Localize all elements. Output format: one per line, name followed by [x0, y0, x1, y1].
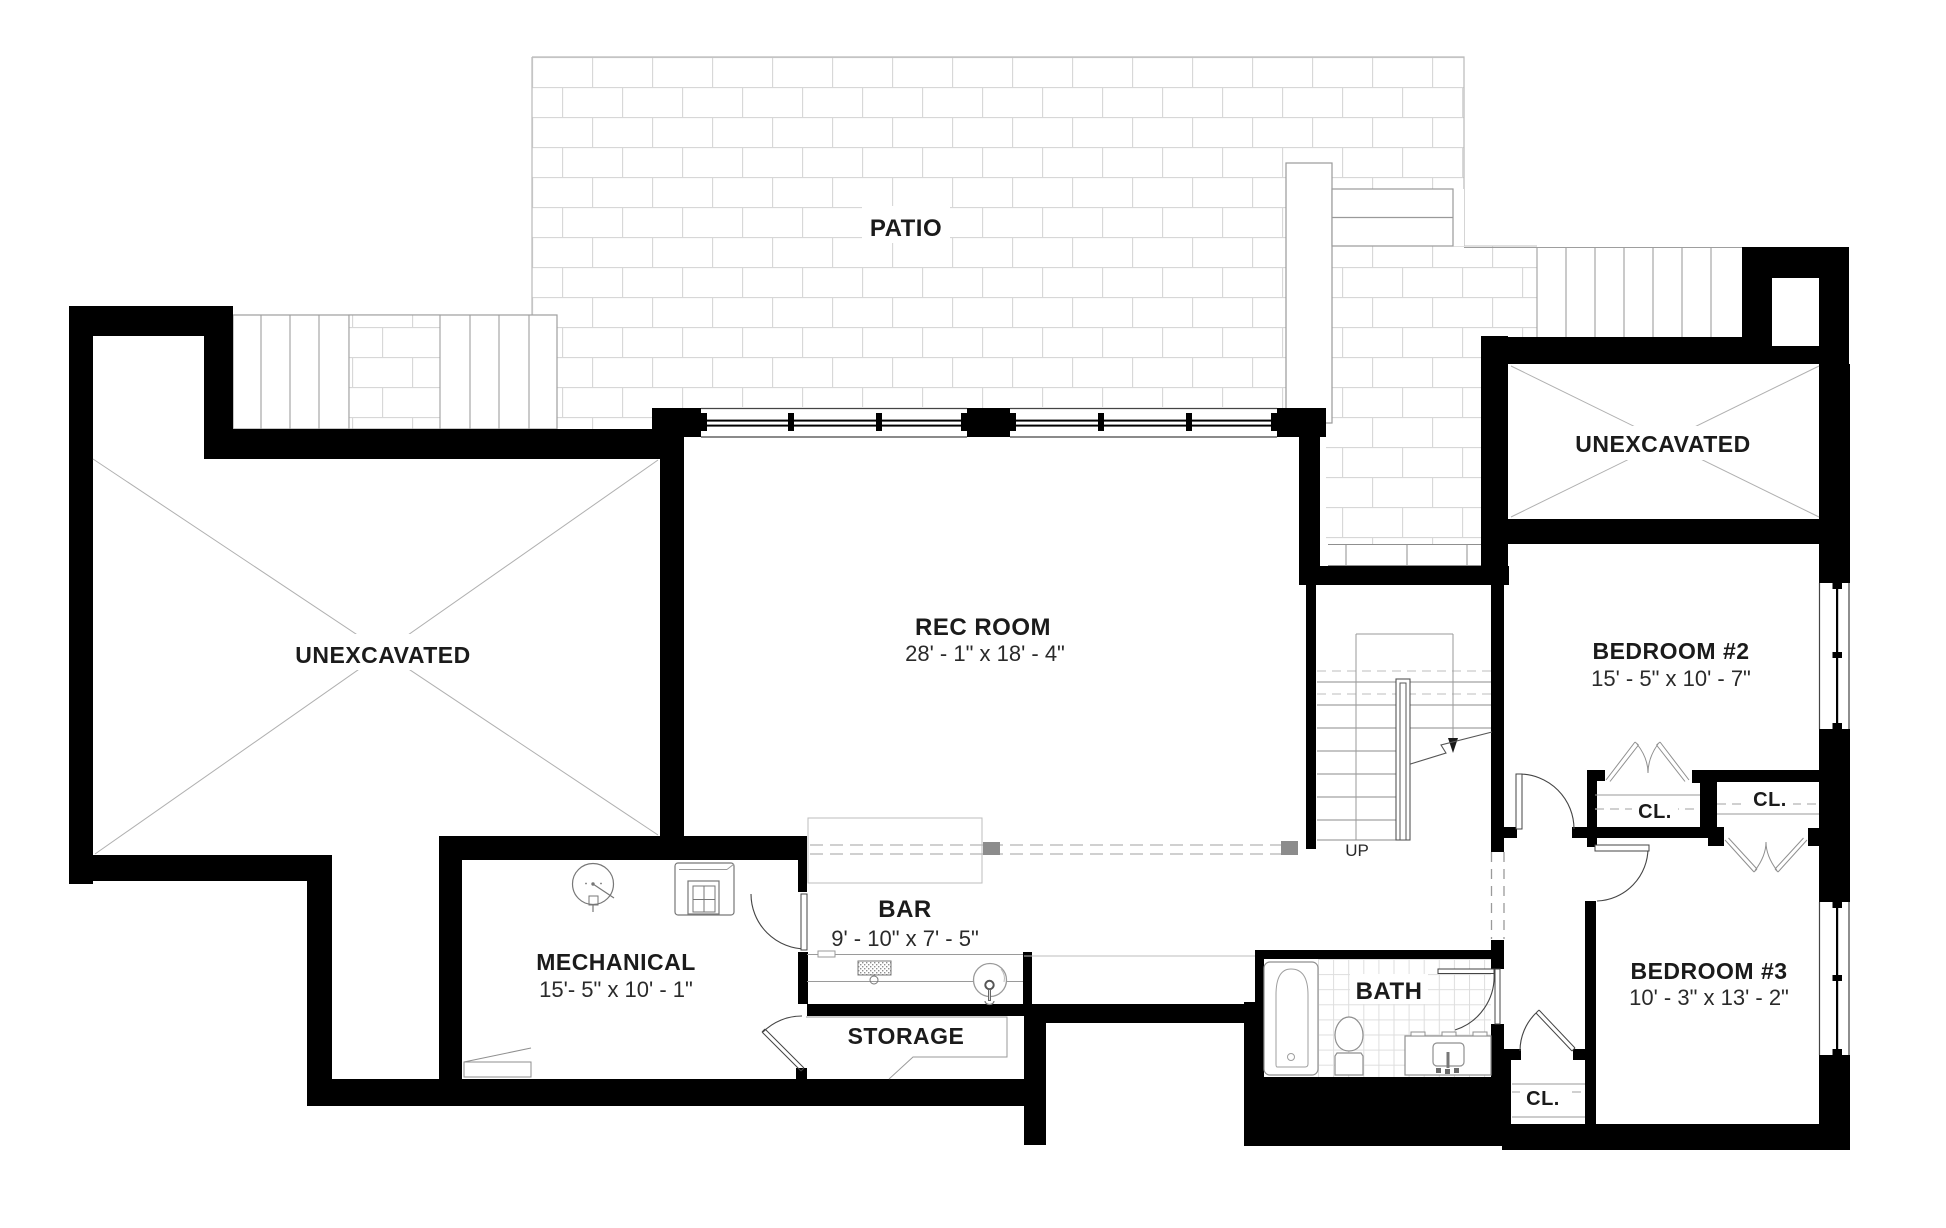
svg-text:UP: UP — [1345, 841, 1369, 860]
svg-text:MECHANICAL: MECHANICAL — [536, 949, 696, 975]
svg-text:UNEXCAVATED: UNEXCAVATED — [295, 642, 470, 668]
svg-text:UNEXCAVATED: UNEXCAVATED — [1575, 431, 1750, 457]
svg-text:CL.: CL. — [1526, 1088, 1560, 1110]
svg-text:BEDROOM #2: BEDROOM #2 — [1592, 638, 1749, 664]
svg-text:BATH: BATH — [1356, 978, 1423, 1005]
svg-text:15' - 5" x 10' - 7": 15' - 5" x 10' - 7" — [1591, 666, 1751, 691]
svg-text:9' - 10" x 7' - 5": 9' - 10" x 7' - 5" — [831, 926, 979, 951]
svg-text:STORAGE: STORAGE — [848, 1023, 965, 1049]
svg-text:BEDROOM #3: BEDROOM #3 — [1630, 958, 1787, 984]
svg-text:15'- 5" x 10' - 1": 15'- 5" x 10' - 1" — [539, 977, 693, 1002]
svg-text:REC ROOM: REC ROOM — [915, 614, 1051, 641]
svg-text:PATIO: PATIO — [870, 215, 942, 242]
svg-text:CL.: CL. — [1753, 789, 1787, 811]
svg-text:28' - 1" x 18' - 4": 28' - 1" x 18' - 4" — [905, 641, 1065, 666]
svg-text:10' - 3" x 13' - 2": 10' - 3" x 13' - 2" — [1629, 985, 1789, 1010]
svg-text:CL.: CL. — [1638, 801, 1672, 823]
svg-text:BAR: BAR — [878, 896, 932, 923]
